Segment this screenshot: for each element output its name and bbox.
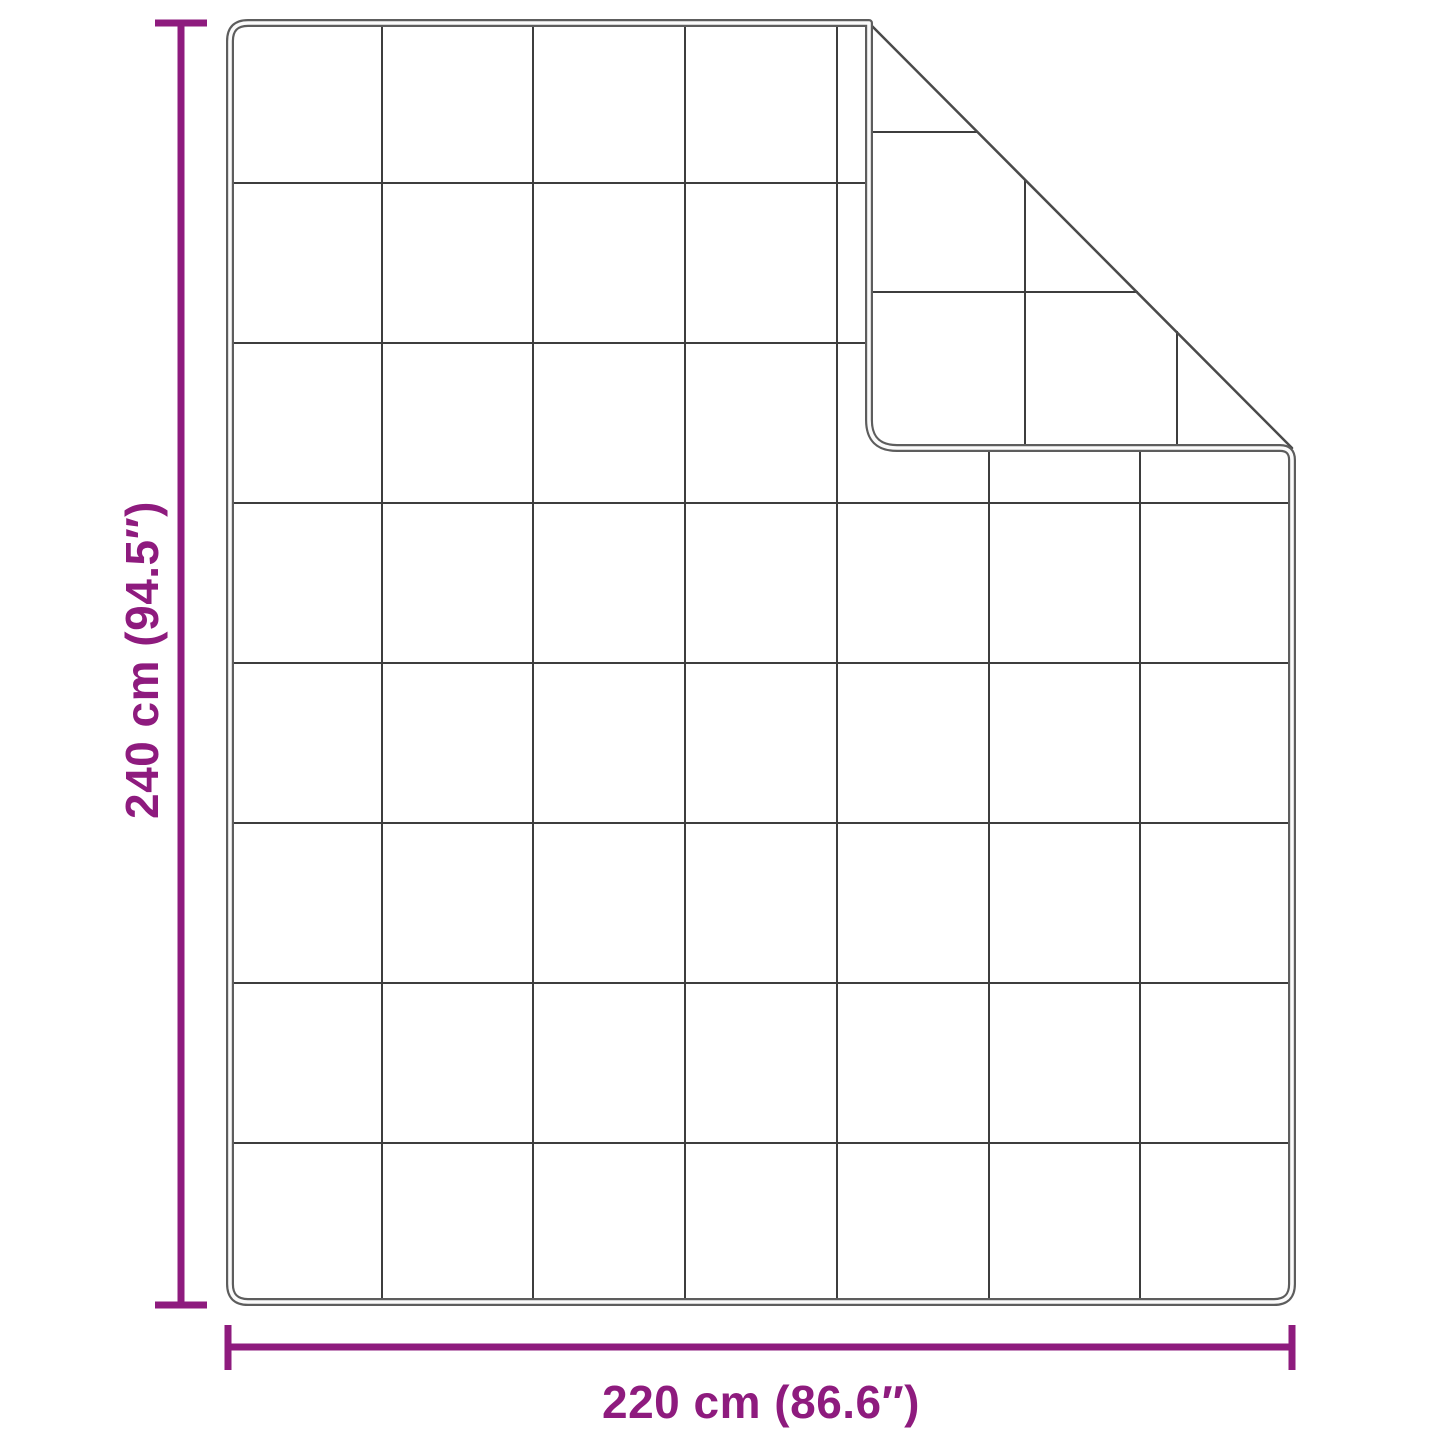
width-dimension [228, 1325, 1292, 1370]
width-dimension-label: 220 cm (86.6″) [602, 1376, 920, 1428]
blanket-dimension-diagram: 240 cm (94.5″) 220 cm (86.6″) [0, 0, 1445, 1445]
fold-crease [869, 23, 1292, 448]
diagram-canvas: 240 cm (94.5″) 220 cm (86.6″) [0, 0, 1445, 1445]
height-dimension-label: 240 cm (94.5″) [116, 501, 168, 819]
